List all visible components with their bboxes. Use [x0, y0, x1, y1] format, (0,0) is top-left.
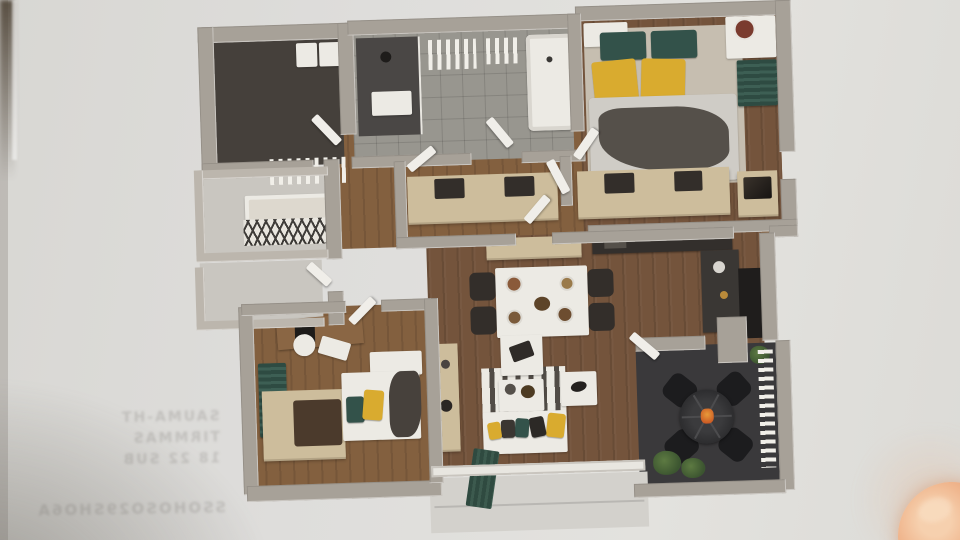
beige-bed-right: [577, 167, 730, 218]
beige-bed-left-inset-2: [504, 176, 535, 197]
bathroom-shelf: [371, 91, 412, 116]
sofa-pillow-teal: [514, 418, 529, 438]
balcony-railing-x: [243, 217, 334, 246]
dining-chair-2: [470, 306, 497, 335]
kids-pillow-yellow: [362, 389, 384, 420]
kids-bed-dark-throw: [293, 399, 342, 446]
balcony-parapet: [195, 267, 206, 327]
corner-shadow: [0, 360, 300, 540]
wall: [759, 232, 778, 340]
beige-bed-left-inset-1: [434, 178, 465, 199]
dining-chair-1: [469, 272, 496, 301]
balcony-lower-floor: [200, 260, 324, 326]
balcony-bench-cushion: [249, 197, 330, 220]
beige-bed-right-inset-1: [604, 173, 635, 194]
master-pillow-teal-1: [600, 31, 647, 60]
beige-bed-right-inset-2: [674, 171, 703, 192]
towel-radiator-1: [428, 39, 477, 70]
dining-chair-3: [587, 268, 614, 297]
patio-lantern-icon: [701, 408, 714, 423]
photo-of-floor-plan: SAUMA-HT TIRMMAS 18 22 SUB SSOHOSO29SHO6…: [0, 0, 960, 540]
sofa-pillow-dark-2: [501, 420, 516, 438]
terrace-wall-block: [717, 316, 748, 363]
master-pillow-teal-2: [651, 30, 698, 59]
washer-box: [296, 43, 318, 68]
sofa-pillow-yellow-2: [487, 421, 503, 440]
wall: [775, 0, 796, 152]
dining-chair-4: [588, 302, 615, 331]
beige-nightstand-top: [743, 176, 772, 199]
green-slat-bench: [737, 59, 778, 106]
towel-radiator-2: [486, 37, 521, 64]
page-edge-highlight: [12, 0, 17, 160]
kids-fur-throw: [388, 371, 422, 438]
sofa-pillow-yellow-1: [546, 412, 566, 438]
shower-floor: [356, 36, 423, 136]
